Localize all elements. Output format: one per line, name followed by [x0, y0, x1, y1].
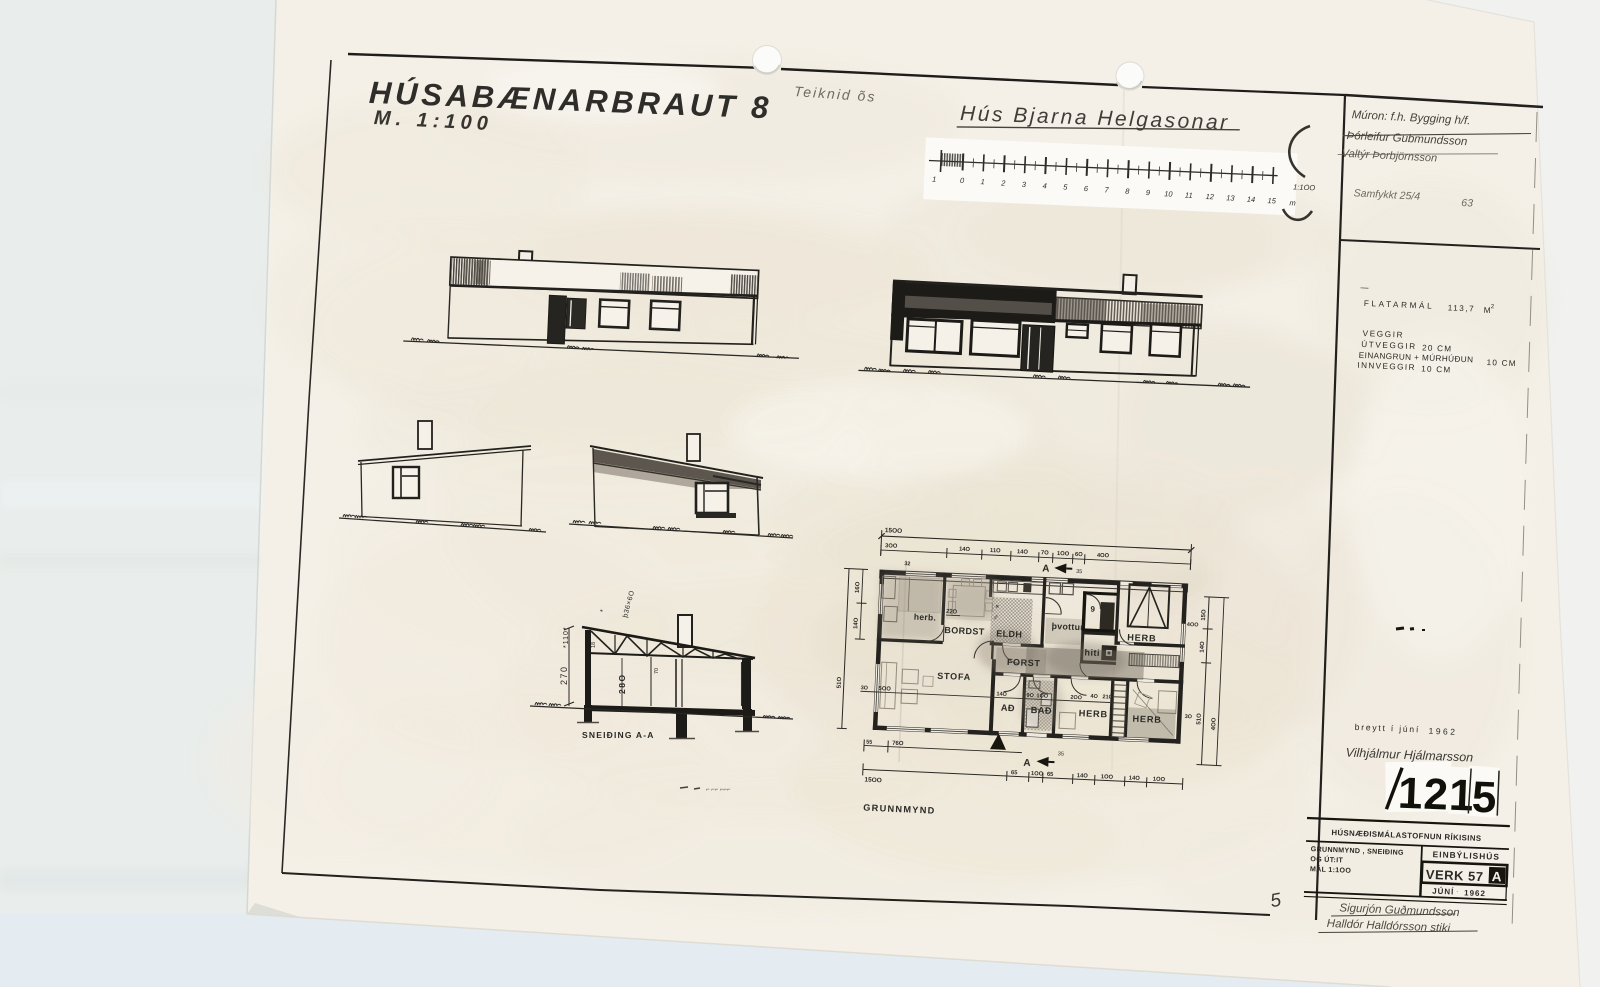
svg-text:·: ·	[1456, 889, 1458, 895]
svg-text:2OO: 2OO	[1070, 695, 1083, 702]
svg-text:12: 12	[1397, 769, 1450, 820]
svg-text:OG ÚT:IT: OG ÚT:IT	[1310, 854, 1343, 864]
svg-text:1: 1	[980, 177, 985, 186]
svg-text:15OO: 15OO	[864, 777, 882, 785]
svg-text:22O: 22O	[946, 609, 958, 616]
svg-text:12: 12	[1205, 192, 1215, 201]
svg-text:STOFA: STOFA	[937, 671, 971, 683]
svg-text:1OO: 1OO	[1036, 693, 1049, 700]
svg-text:herb.: herb.	[914, 612, 937, 623]
svg-text:14O: 14O	[1129, 776, 1141, 783]
svg-text:14O: 14O	[996, 691, 1007, 697]
svg-text:113,7: 113,7	[1448, 303, 1476, 313]
svg-text:5OO: 5OO	[878, 686, 891, 693]
svg-text:14O: 14O	[1077, 773, 1089, 780]
svg-text:10 CM: 10 CM	[1486, 358, 1516, 368]
svg-text:1OO: 1OO	[1153, 777, 1166, 784]
svg-text:270: 270	[559, 665, 569, 685]
svg-text:―: ―	[1360, 283, 1369, 292]
svg-text:14O: 14O	[853, 617, 860, 629]
svg-text:55: 55	[866, 740, 872, 746]
svg-text:BAÐ: BAÐ	[1031, 705, 1053, 716]
svg-text:AÐ: AÐ	[1001, 703, 1016, 714]
svg-text:10: 10	[1164, 189, 1174, 198]
svg-text:14O: 14O	[1017, 549, 1029, 556]
svg-text:1: 1	[932, 175, 937, 184]
svg-text:70: 70	[654, 668, 660, 674]
svg-text:65: 65	[1047, 772, 1054, 778]
svg-text:m: m	[1289, 198, 1296, 207]
svg-text:15O: 15O	[1201, 609, 1208, 621]
svg-text:11: 11	[1185, 191, 1193, 200]
svg-text:⌐ ⌐⌐ ⌐⌐⌐: ⌐ ⌐⌐ ⌐⌐⌐	[706, 787, 731, 793]
svg-text:13: 13	[1226, 193, 1236, 202]
svg-text:BORDST: BORDST	[944, 625, 985, 637]
svg-text:3O: 3O	[1185, 714, 1193, 720]
svg-text:14: 14	[1247, 195, 1256, 204]
svg-text:JÚNÍ: JÚNÍ	[1432, 887, 1455, 897]
svg-text:65: 65	[1011, 770, 1018, 776]
svg-text:6O: 6O	[1075, 552, 1083, 558]
svg-text:A: A	[1023, 758, 1031, 769]
svg-text:15: 15	[1267, 196, 1277, 205]
svg-text:51O: 51O	[837, 676, 844, 688]
svg-text:1962: 1962	[1464, 888, 1486, 898]
svg-text:HERB: HERB	[1127, 632, 1157, 643]
svg-text:VERK 57: VERK 57	[1426, 867, 1484, 884]
svg-text:35: 35	[1058, 751, 1064, 757]
svg-text:1OO: 1OO	[1057, 551, 1070, 558]
svg-text:7O: 7O	[1041, 550, 1049, 556]
svg-text:20 CM: 20 CM	[1422, 343, 1452, 353]
svg-text:10 CM: 10 CM	[1421, 364, 1451, 374]
svg-text:ELDH: ELDH	[996, 628, 1023, 639]
svg-text:1OO: 1OO	[1101, 774, 1114, 781]
svg-text:4OO: 4OO	[1211, 717, 1218, 730]
svg-text:VEGGIR: VEGGIR	[1362, 329, 1404, 340]
svg-text:A: A	[1042, 563, 1050, 574]
svg-text:11O: 11O	[990, 548, 1001, 554]
svg-text:28O: 28O	[617, 673, 627, 694]
svg-text:15OO: 15OO	[885, 527, 903, 535]
svg-text:21O: 21O	[1102, 694, 1113, 700]
svg-text:M: M	[1484, 306, 1491, 315]
svg-text:SNEIÐING A-A: SNEIÐING A-A	[582, 730, 655, 740]
svg-text:76O: 76O	[892, 741, 904, 748]
svg-text:*: *	[600, 609, 607, 612]
svg-text:35: 35	[1076, 569, 1082, 575]
svg-text:A: A	[1492, 869, 1503, 884]
svg-text:3OO: 3OO	[885, 543, 898, 550]
svg-text:16O: 16O	[855, 581, 862, 593]
svg-text:18: 18	[591, 642, 597, 648]
svg-text:HERB: HERB	[1132, 714, 1162, 725]
svg-text:HERB: HERB	[1078, 708, 1108, 719]
svg-text:4OO: 4OO	[1187, 622, 1200, 629]
svg-text:4: 4	[1042, 181, 1047, 190]
svg-text:9O: 9O	[1026, 693, 1034, 699]
svg-text:4O: 4O	[1090, 694, 1098, 700]
svg-text:5: 5	[1471, 773, 1497, 823]
svg-text:32: 32	[904, 561, 910, 567]
svg-text:MÁL 1:1OO: MÁL 1:1OO	[1310, 864, 1352, 875]
svg-text:4OO: 4OO	[1097, 553, 1110, 560]
svg-text:14O: 14O	[1200, 641, 1207, 653]
svg-text:14O: 14O	[959, 547, 971, 554]
svg-text:FORST: FORST	[1007, 657, 1041, 669]
svg-text:1OO: 1OO	[1031, 771, 1044, 778]
svg-text:þvottur: þvottur	[1051, 621, 1084, 632]
svg-text:hiti: hiti	[1084, 647, 1100, 658]
svg-text:63: 63	[1461, 197, 1473, 210]
svg-text:1962: 1962	[1428, 726, 1457, 737]
svg-text:1:1OO: 1:1OO	[1293, 182, 1316, 192]
svg-text:3O: 3O	[860, 685, 868, 691]
svg-text:51O: 51O	[1196, 713, 1203, 725]
